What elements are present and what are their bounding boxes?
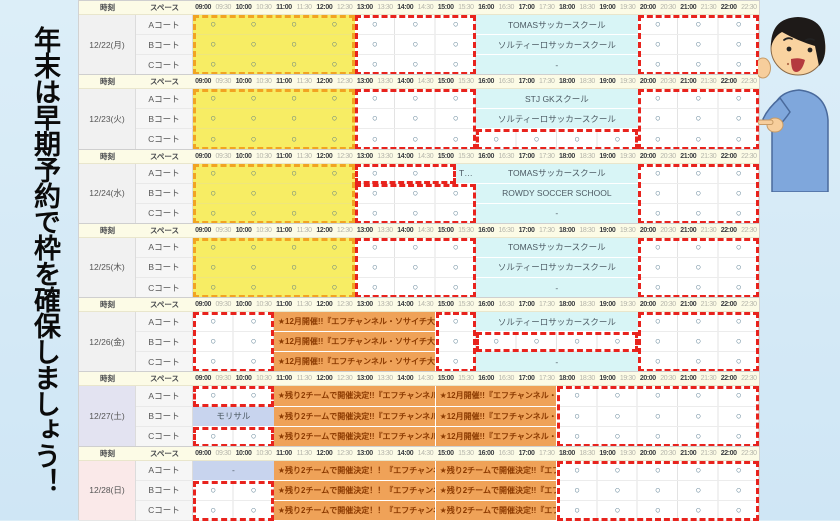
slot-available-mark[interactable]: ○ — [210, 20, 216, 30]
slot-available-mark[interactable]: ○ — [332, 283, 338, 293]
slot-available-mark[interactable]: ○ — [412, 135, 418, 145]
slot-available-mark[interactable]: ○ — [453, 317, 459, 327]
slot-available-mark[interactable]: ○ — [736, 189, 742, 199]
slot-available-mark[interactable]: ○ — [655, 486, 661, 496]
slot-available-mark[interactable]: ○ — [736, 243, 742, 253]
time-header-cell: 15:30 — [456, 372, 476, 386]
slot-available-mark[interactable]: ○ — [412, 263, 418, 273]
slot-available-mark[interactable]: ○ — [453, 337, 459, 347]
time-header-cell: 14:30 — [415, 447, 435, 461]
slot-available-mark[interactable]: ○ — [655, 20, 661, 30]
slot-available-mark[interactable]: ○ — [695, 169, 701, 179]
event-cell[interactable]: ★12月開催!!『エフチャンネル・ソサイチ大会!!… — [274, 312, 436, 332]
time-column-header: 時刻 — [79, 1, 136, 15]
time-header-cell: 13:30 — [375, 150, 395, 164]
slot-available-mark[interactable]: ○ — [655, 317, 661, 327]
slot-available-mark[interactable]: ○ — [291, 94, 297, 104]
court-label: Aコート — [136, 238, 193, 258]
slot-available-mark[interactable]: ○ — [695, 392, 701, 402]
slot-available-mark[interactable]: ○ — [210, 506, 216, 516]
slot-available-mark[interactable]: ○ — [493, 337, 499, 347]
event-cell[interactable]: ★残り2チームで開催決定!!『エフチャンネル・… — [274, 427, 436, 447]
slot-available-mark[interactable]: ○ — [655, 506, 661, 516]
slot-available-mark[interactable]: ○ — [695, 20, 701, 30]
slot-available-mark[interactable]: ○ — [655, 412, 661, 422]
slot-available-mark[interactable]: ○ — [453, 283, 459, 293]
slot-available-mark[interactable]: ○ — [574, 392, 580, 402]
slot-available-mark[interactable]: ○ — [210, 114, 216, 124]
time-header-cell: 22:00 — [719, 150, 739, 164]
slot-available-mark[interactable]: ○ — [210, 357, 216, 367]
slot-available-mark[interactable]: ○ — [615, 392, 621, 402]
time-header-cell: 19:00 — [597, 150, 617, 164]
time-header-cell: 19:30 — [618, 150, 638, 164]
time-header-cell: 19:00 — [597, 447, 617, 461]
slot-available-mark[interactable]: ○ — [332, 114, 338, 124]
slot-available-mark[interactable]: ○ — [453, 60, 459, 69]
slot-available-mark[interactable]: ○ — [412, 209, 418, 219]
slot-available-mark[interactable]: ○ — [736, 263, 742, 273]
slot-available-mark[interactable]: ○ — [210, 60, 216, 69]
empty-cell: - — [476, 352, 638, 372]
slot-available-mark[interactable]: ○ — [291, 114, 297, 124]
time-header-cell: 15:00 — [436, 372, 456, 386]
slot-available-mark[interactable]: ○ — [412, 40, 418, 50]
slot-available-mark[interactable]: ○ — [372, 40, 378, 50]
date-cell: 12/25(木) — [79, 238, 136, 298]
time-header-cell: 12:30 — [335, 224, 355, 238]
time-header-cell: 15:00 — [436, 224, 456, 238]
slot-available-mark[interactable]: ○ — [574, 466, 580, 476]
slot-available-mark[interactable]: ○ — [412, 94, 418, 104]
time-header-cell: 19:00 — [597, 1, 617, 15]
time-header-cell: 20:30 — [658, 372, 678, 386]
time-header-cell: 14:00 — [395, 1, 415, 15]
slot-available-mark[interactable]: ○ — [372, 243, 378, 253]
slot-available-mark[interactable]: ○ — [412, 283, 418, 293]
slot-available-mark[interactable]: ○ — [332, 263, 338, 273]
slot-available-mark[interactable]: ○ — [655, 337, 661, 347]
slot-available-mark[interactable]: ○ — [251, 283, 257, 293]
time-header-cell: 10:00 — [233, 298, 253, 312]
slot-available-mark[interactable]: ○ — [695, 486, 701, 496]
slot-available-mark[interactable]: ○ — [695, 94, 701, 104]
slot-available-mark[interactable]: ○ — [251, 357, 257, 367]
slot-available-mark[interactable]: ○ — [655, 94, 661, 104]
time-header-cell: 21:30 — [698, 298, 718, 312]
slot-available-mark[interactable]: ○ — [736, 317, 742, 327]
slot-available-mark[interactable]: ○ — [534, 337, 540, 347]
slot-available-mark[interactable]: ○ — [655, 392, 661, 402]
time-header-cell: 09:30 — [213, 298, 233, 312]
slot-cell — [193, 164, 355, 184]
time-header-cell: 16:30 — [496, 372, 516, 386]
slot-available-mark[interactable]: ○ — [655, 169, 661, 179]
school-cell[interactable]: T… — [456, 164, 476, 184]
time-header-cell: 21:00 — [678, 372, 698, 386]
day-block: 時刻スペース09:0009:3010:0010:3011:0011:3012:0… — [79, 223, 759, 297]
slot-available-mark[interactable]: ○ — [332, 189, 338, 199]
time-header-cell: 17:00 — [516, 447, 536, 461]
slot-available-mark[interactable]: ○ — [574, 135, 580, 145]
slot-available-mark[interactable]: ○ — [251, 20, 257, 30]
slot-available-mark[interactable]: ○ — [332, 20, 338, 30]
slot-available-mark[interactable]: ○ — [453, 20, 459, 30]
slot-available-mark[interactable]: ○ — [655, 243, 661, 253]
slot-available-mark[interactable]: ○ — [251, 209, 257, 219]
date-cell: 12/27(土) — [79, 386, 136, 446]
slot-available-mark[interactable]: ○ — [210, 317, 216, 327]
time-header-cell: 14:00 — [395, 447, 415, 461]
slot-available-mark[interactable]: ○ — [332, 243, 338, 253]
slot-available-mark[interactable]: ○ — [291, 135, 297, 145]
slot-available-mark[interactable]: ○ — [332, 60, 338, 69]
time-header-cell: 20:30 — [658, 447, 678, 461]
slot-available-mark[interactable]: ○ — [695, 243, 701, 253]
slot-available-mark[interactable]: ○ — [251, 317, 257, 327]
slot-available-mark[interactable]: ○ — [251, 337, 257, 347]
time-header-cell: 15:30 — [456, 1, 476, 15]
event-cell[interactable]: ★12月開催!!『エフチャンネル・ソサイチ大会!!… — [274, 332, 436, 352]
slot-available-mark[interactable]: ○ — [655, 357, 661, 367]
slot-available-mark[interactable]: ○ — [453, 357, 459, 367]
event-cell[interactable]: ★残り2チームで開催決定!!『エフチャンネル・… — [274, 407, 436, 427]
slot-available-mark[interactable]: ○ — [695, 337, 701, 347]
slot-available-mark[interactable]: ○ — [412, 20, 418, 30]
slot-available-mark[interactable]: ○ — [291, 189, 297, 199]
time-header-cell: 16:30 — [496, 1, 516, 15]
slot-available-mark[interactable]: ○ — [251, 60, 257, 69]
time-header-cell: 14:30 — [415, 298, 435, 312]
slot-available-mark[interactable]: ○ — [210, 40, 216, 50]
time-header-cell: 19:00 — [597, 298, 617, 312]
time-header-cell: 17:30 — [537, 75, 557, 89]
slot-available-mark[interactable]: ○ — [655, 135, 661, 145]
slot-available-mark[interactable]: ○ — [695, 317, 701, 327]
space-column-header: スペース — [136, 372, 193, 386]
slot-available-mark[interactable]: ○ — [736, 209, 742, 219]
slot-available-mark[interactable]: ○ — [332, 209, 338, 219]
time-header-cell: 22:30 — [739, 224, 759, 238]
slot-available-mark[interactable]: ○ — [736, 357, 742, 367]
slot-available-mark[interactable]: ○ — [210, 94, 216, 104]
date-cell: 12/28(日) — [79, 461, 136, 521]
slot-available-mark[interactable]: ○ — [291, 169, 297, 179]
slot-available-mark[interactable]: ○ — [736, 169, 742, 179]
slot-available-mark[interactable]: ○ — [695, 357, 701, 367]
school-cell[interactable]: ROWDY SOCCER SCHOOL — [476, 184, 638, 204]
slot-cell — [193, 129, 355, 149]
slot-available-mark[interactable]: ○ — [736, 20, 742, 30]
slot-available-mark[interactable]: ○ — [655, 114, 661, 124]
school-cell[interactable]: TOMASサッカースクール — [476, 15, 638, 35]
time-header-cell: 16:00 — [476, 298, 496, 312]
event-cell[interactable]: ★残り2チームで開催決定!!『エフ… — [436, 461, 557, 481]
slot-available-mark[interactable]: ○ — [453, 40, 459, 50]
slot-available-mark[interactable]: ○ — [453, 189, 459, 199]
slot-available-mark[interactable]: ○ — [372, 209, 378, 219]
time-header-cell: 20:00 — [638, 1, 658, 15]
slot-available-mark[interactable]: ○ — [372, 114, 378, 124]
slot-available-mark[interactable]: ○ — [615, 412, 621, 422]
court-label: Bコート — [136, 481, 193, 501]
slot-available-mark[interactable]: ○ — [655, 209, 661, 219]
slot-available-mark[interactable]: ○ — [291, 209, 297, 219]
slot-available-mark[interactable]: ○ — [251, 486, 257, 496]
slot-available-mark[interactable]: ○ — [736, 392, 742, 402]
event-cell[interactable]: ★残り2チームで開催決定!!『エフ… — [436, 501, 557, 521]
slot-available-mark[interactable]: ○ — [251, 392, 257, 402]
slot-available-mark[interactable]: ○ — [655, 40, 661, 50]
time-header-cell: 10:00 — [233, 372, 253, 386]
slot-available-mark[interactable]: ○ — [332, 40, 338, 50]
school-cell[interactable]: ソルティーロサッカースクール — [476, 258, 638, 278]
time-header-cell: 09:00 — [193, 1, 213, 15]
slot-available-mark[interactable]: ○ — [332, 169, 338, 179]
day-block: 時刻スペース09:0009:3010:0010:3011:0011:3012:0… — [79, 297, 759, 371]
slot-available-mark[interactable]: ○ — [655, 283, 661, 293]
court-label: Aコート — [136, 89, 193, 109]
slot-available-mark[interactable]: ○ — [210, 243, 216, 253]
slot-available-mark[interactable]: ○ — [615, 135, 621, 145]
slot-available-mark[interactable]: ○ — [372, 135, 378, 145]
slot-available-mark[interactable]: ○ — [695, 40, 701, 50]
slot-available-mark[interactable]: ○ — [412, 60, 418, 69]
slot-available-mark[interactable]: ○ — [615, 506, 621, 516]
time-header-cell: 11:30 — [294, 447, 314, 461]
slot-available-mark[interactable]: ○ — [655, 189, 661, 199]
time-header-cell: 15:00 — [436, 298, 456, 312]
slot-available-mark[interactable]: ○ — [453, 114, 459, 124]
slot-available-mark[interactable]: ○ — [332, 94, 338, 104]
slot-available-mark[interactable]: ○ — [210, 209, 216, 219]
slot-available-mark[interactable]: ○ — [210, 283, 216, 293]
slot-available-mark[interactable]: ○ — [412, 189, 418, 199]
day-block: 時刻スペース09:0009:3010:0010:3011:0011:3012:0… — [79, 446, 759, 520]
slot-available-mark[interactable]: ○ — [655, 263, 661, 273]
slot-available-mark[interactable]: ○ — [453, 135, 459, 145]
slot-available-mark[interactable]: ○ — [695, 466, 701, 476]
slot-available-mark[interactable]: ○ — [615, 466, 621, 476]
slot-available-mark[interactable]: ○ — [655, 60, 661, 69]
slot-available-mark[interactable]: ○ — [695, 114, 701, 124]
slot-available-mark[interactable]: ○ — [251, 94, 257, 104]
time-header-cell: 10:30 — [254, 75, 274, 89]
time-header-cell: 15:00 — [436, 150, 456, 164]
event-cell[interactable]: ★12月開催!!『エフチャンネル・ソ… — [436, 407, 557, 427]
slot-available-mark[interactable]: ○ — [695, 412, 701, 422]
slot-available-mark[interactable]: ○ — [574, 412, 580, 422]
slot-available-mark[interactable]: ○ — [291, 60, 297, 69]
slot-available-mark[interactable]: ○ — [251, 40, 257, 50]
slot-cell — [193, 238, 355, 258]
slot-available-mark[interactable]: ○ — [695, 209, 701, 219]
slot-available-mark[interactable]: ○ — [372, 60, 378, 69]
slot-available-mark[interactable]: ○ — [372, 189, 378, 199]
time-header-cell: 17:30 — [537, 298, 557, 312]
date-cell: 12/24(水) — [79, 164, 136, 224]
time-header-cell: 22:00 — [719, 224, 739, 238]
slot-available-mark[interactable]: ○ — [655, 432, 661, 442]
slot-available-mark[interactable]: ○ — [210, 392, 216, 402]
slot-available-mark[interactable]: ○ — [736, 40, 742, 50]
slot-available-mark[interactable]: ○ — [736, 337, 742, 347]
court-label: Cコート — [136, 501, 193, 521]
slot-available-mark[interactable]: ○ — [574, 486, 580, 496]
slot-available-mark[interactable]: ○ — [251, 263, 257, 273]
time-header-cell: 10:00 — [233, 224, 253, 238]
slot-available-mark[interactable]: ○ — [695, 135, 701, 145]
school-cell[interactable]: TOMASサッカースクール — [476, 164, 638, 184]
slot-available-mark[interactable]: ○ — [291, 283, 297, 293]
slot-available-mark[interactable]: ○ — [695, 432, 701, 442]
slot-available-mark[interactable]: ○ — [615, 486, 621, 496]
slot-available-mark[interactable]: ○ — [534, 135, 540, 145]
slot-available-mark[interactable]: ○ — [615, 432, 621, 442]
school-cell[interactable]: STJ GKスクール — [476, 89, 638, 109]
slot-available-mark[interactable]: ○ — [736, 114, 742, 124]
school-cell[interactable]: ソルティーロサッカースクール — [476, 109, 638, 129]
event-cell[interactable]: ★残り2チームで開催決定！！『エフチャンネル… — [274, 481, 436, 501]
slot-available-mark[interactable]: ○ — [291, 243, 297, 253]
slot-available-mark[interactable]: ○ — [615, 337, 621, 347]
slot-available-mark[interactable]: ○ — [412, 169, 418, 179]
time-header-cell: 11:00 — [274, 447, 294, 461]
slot-available-mark[interactable]: ○ — [574, 506, 580, 516]
slot-available-mark[interactable]: ○ — [574, 337, 580, 347]
slot-available-mark[interactable]: ○ — [695, 189, 701, 199]
time-header-cell: 10:30 — [254, 372, 274, 386]
event-cell[interactable]: ★12月開催!!『エフチャンネル・ソサイチ大会!!… — [274, 352, 436, 372]
event-cell[interactable]: ★12月開催!!『エフチャンネル・ソ… — [436, 386, 557, 406]
slot-available-mark[interactable]: ○ — [736, 135, 742, 145]
time-header-cell: 10:00 — [233, 150, 253, 164]
time-header-cell: 13:30 — [375, 1, 395, 15]
slot-available-mark[interactable]: ○ — [251, 135, 257, 145]
slot-available-mark[interactable]: ○ — [210, 486, 216, 496]
slot-available-mark[interactable]: ○ — [372, 263, 378, 273]
slot-available-mark[interactable]: ○ — [695, 263, 701, 273]
slot-available-mark[interactable]: ○ — [332, 135, 338, 145]
time-header-cell: 21:00 — [678, 150, 698, 164]
slot-available-mark[interactable]: ○ — [210, 169, 216, 179]
space-column-header: スペース — [136, 75, 193, 89]
slot-available-mark[interactable]: ○ — [453, 94, 459, 104]
slot-available-mark[interactable]: ○ — [655, 466, 661, 476]
slot-available-mark[interactable]: ○ — [372, 283, 378, 293]
time-header-cell: 19:30 — [618, 447, 638, 461]
slot-available-mark[interactable]: ○ — [291, 20, 297, 30]
court-label: Cコート — [136, 427, 193, 447]
time-header-cell: 13:00 — [355, 372, 375, 386]
slot-available-mark[interactable]: ○ — [736, 432, 742, 442]
slot-available-mark[interactable]: ○ — [736, 506, 742, 516]
slot-available-mark[interactable]: ○ — [736, 466, 742, 476]
slot-available-mark[interactable]: ○ — [493, 135, 499, 145]
slot-available-mark[interactable]: ○ — [251, 432, 257, 442]
slot-available-mark[interactable]: ○ — [251, 506, 257, 516]
slot-available-mark[interactable]: ○ — [453, 243, 459, 253]
time-header-cell: 18:00 — [557, 372, 577, 386]
slot-cell — [193, 109, 355, 129]
time-header-cell: 20:00 — [638, 298, 658, 312]
slot-available-mark[interactable]: ○ — [736, 486, 742, 496]
event-cell[interactable]: ★残り2チームで開催決定!!『エフ… — [436, 481, 557, 501]
slot-available-mark[interactable]: ○ — [210, 189, 216, 199]
time-header-cell: 22:00 — [719, 447, 739, 461]
slot-available-mark[interactable]: ○ — [251, 243, 257, 253]
booking-cell[interactable]: モリサル — [193, 407, 274, 427]
slot-cell — [193, 184, 355, 204]
slot-available-mark[interactable]: ○ — [736, 412, 742, 422]
time-header-cell: 22:00 — [719, 372, 739, 386]
slot-available-mark[interactable]: ○ — [210, 432, 216, 442]
slot-available-mark[interactable]: ○ — [372, 20, 378, 30]
event-cell[interactable]: ★残り2チームで開催決定！！『エフチャンネル… — [274, 501, 436, 521]
time-header-cell: 16:00 — [476, 75, 496, 89]
slot-available-mark[interactable]: ○ — [210, 263, 216, 273]
event-cell[interactable]: ★残り2チームで開催決定!!『エフチャンネル・… — [274, 386, 436, 406]
school-cell[interactable]: ソルティーロサッカースクール — [476, 35, 638, 55]
time-header-cell: 18:30 — [577, 447, 597, 461]
time-header-cell: 19:00 — [597, 75, 617, 89]
time-header-cell: 18:00 — [557, 298, 577, 312]
time-header-cell: 20:00 — [638, 75, 658, 89]
slot-available-mark[interactable]: ○ — [574, 432, 580, 442]
slot-available-mark[interactable]: ○ — [412, 243, 418, 253]
slot-available-mark[interactable]: ○ — [251, 114, 257, 124]
slot-available-mark[interactable]: ○ — [372, 94, 378, 104]
slot-available-mark[interactable]: ○ — [736, 283, 742, 293]
school-cell[interactable]: ソルティーロサッカースクール — [476, 312, 638, 332]
slot-available-mark[interactable]: ○ — [736, 94, 742, 104]
slot-available-mark[interactable]: ○ — [291, 263, 297, 273]
slot-available-mark[interactable]: ○ — [251, 189, 257, 199]
time-header-cell: 16:30 — [496, 447, 516, 461]
slot-available-mark[interactable]: ○ — [251, 169, 257, 179]
slot-available-mark[interactable]: ○ — [736, 60, 742, 69]
slot-available-mark[interactable]: ○ — [291, 40, 297, 50]
slot-available-mark[interactable]: ○ — [210, 135, 216, 145]
slot-available-mark[interactable]: ○ — [695, 283, 701, 293]
time-header-cell: 11:30 — [294, 224, 314, 238]
slot-available-mark[interactable]: ○ — [695, 506, 701, 516]
slot-available-mark[interactable]: ○ — [453, 209, 459, 219]
time-header-cell: 15:30 — [456, 150, 476, 164]
time-header-cell: 09:30 — [213, 224, 233, 238]
court-label: Bコート — [136, 184, 193, 204]
time-header-cell: 16:30 — [496, 298, 516, 312]
time-header-cell: 16:30 — [496, 75, 516, 89]
slot-available-mark[interactable]: ○ — [210, 337, 216, 347]
time-header-cell: 12:00 — [314, 447, 334, 461]
slot-available-mark[interactable]: ○ — [412, 114, 418, 124]
time-header-cell: 09:30 — [213, 75, 233, 89]
court-label: Cコート — [136, 278, 193, 298]
school-cell[interactable]: TOMASサッカースクール — [476, 238, 638, 258]
time-header-cell: 19:30 — [618, 224, 638, 238]
slot-available-mark[interactable]: ○ — [695, 60, 701, 69]
slot-available-mark[interactable]: ○ — [453, 263, 459, 273]
time-header-cell: 12:00 — [314, 1, 334, 15]
time-header-cell: 21:30 — [698, 224, 718, 238]
time-header-cell: 21:30 — [698, 1, 718, 15]
event-cell[interactable]: ★残り2チームで開催決定！！『エフチャンネル… — [274, 461, 436, 481]
event-cell[interactable]: ★12月開催!!『エフチャンネル・ソ… — [436, 427, 557, 447]
time-header-cell: 22:00 — [719, 1, 739, 15]
slot-available-mark[interactable]: ○ — [372, 169, 378, 179]
day-block: 時刻スペース09:0009:3010:0010:3011:0011:3012:0… — [79, 0, 759, 74]
